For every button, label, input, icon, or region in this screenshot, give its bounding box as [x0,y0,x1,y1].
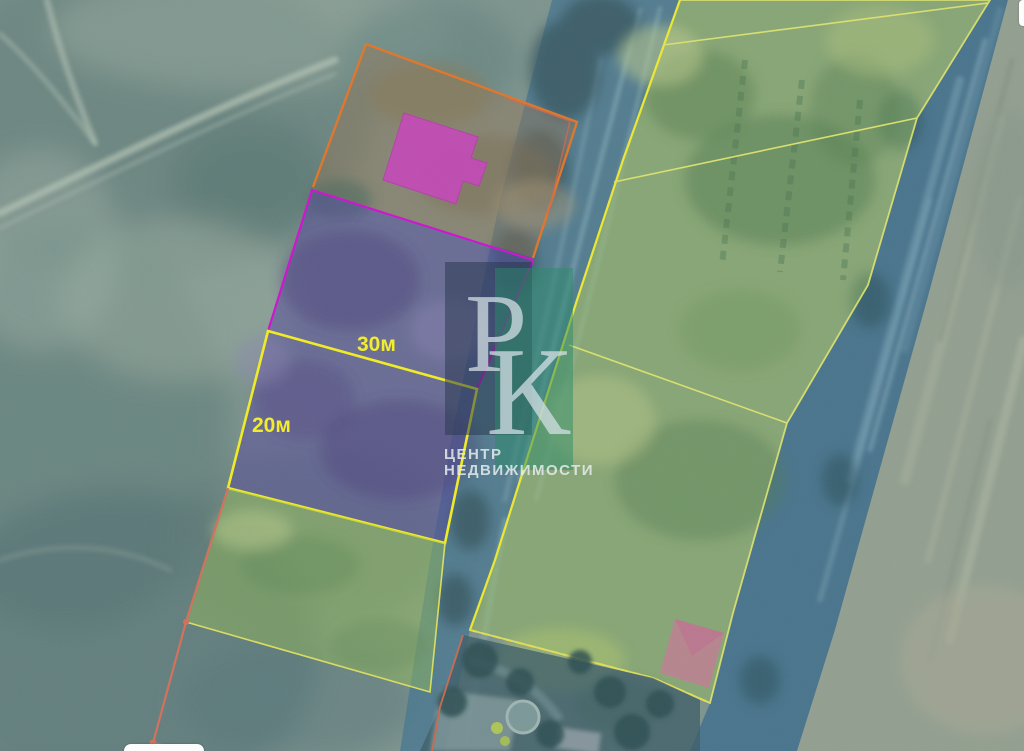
map-viewport[interactable]: 30м 20м Р К ЦЕНТР НЕДВИЖИМОСТИ [0,0,1024,751]
cutoff-control-top-right[interactable] [1019,0,1024,26]
cutoff-panel-bottom-left[interactable] [124,744,204,751]
satellite-map-canvas: 30м 20м Р К ЦЕНТР НЕДВИЖИМОСТИ [0,0,1024,751]
photo-grain-overlay [0,0,1024,751]
